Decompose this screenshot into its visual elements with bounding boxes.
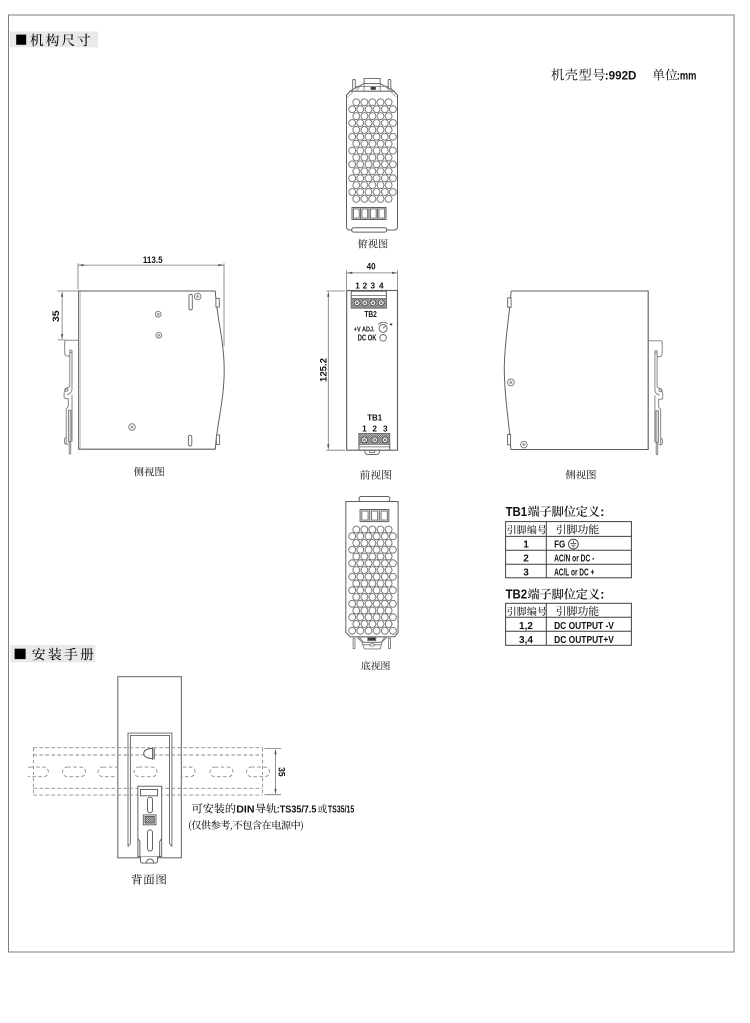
svg-text:+V ADJ.: +V ADJ. [354,324,375,333]
svg-text:TB2: TB2 [506,588,528,602]
svg-text:113.5: 113.5 [143,255,163,266]
svg-text:3: 3 [523,567,529,578]
svg-text::mm: :mm [677,71,697,83]
svg-text:1: 1 [355,281,360,290]
svg-text:35: 35 [51,310,62,322]
svg-text::TS35/7.5: :TS35/7.5 [277,804,317,816]
svg-text:3: 3 [371,281,376,290]
svg-text:1: 1 [362,424,367,433]
svg-text:2: 2 [372,424,377,433]
svg-text:TB1: TB1 [367,413,382,422]
svg-text:DC OUTPUT+V: DC OUTPUT+V [554,635,614,646]
svg-text:DC OK: DC OK [358,334,377,343]
svg-text::992D: :992D [605,71,637,83]
svg-text::: : [600,505,604,519]
svg-text:1: 1 [523,539,529,550]
svg-text:125.2: 125.2 [318,358,329,382]
svg-text:3: 3 [383,424,388,433]
svg-text:2: 2 [523,553,529,564]
svg-text:2: 2 [363,281,368,290]
svg-text:AC/L or DC +: AC/L or DC + [554,567,594,578]
svg-text:35: 35 [277,767,287,777]
svg-text:1,2: 1,2 [519,621,533,632]
svg-text:TB1: TB1 [506,505,528,519]
svg-text:FG: FG [554,539,565,550]
svg-text:TS35/15: TS35/15 [328,804,354,816]
svg-text::: : [600,588,604,602]
svg-text:3,4: 3,4 [519,635,533,646]
svg-text:40: 40 [367,262,376,273]
svg-text:TB2: TB2 [364,310,377,319]
svg-text:DIN: DIN [236,804,254,816]
svg-text:DC OUTPUT -V: DC OUTPUT -V [554,621,614,632]
svg-text:AC/N or DC -: AC/N or DC - [554,553,594,564]
svg-text:4: 4 [379,281,384,290]
